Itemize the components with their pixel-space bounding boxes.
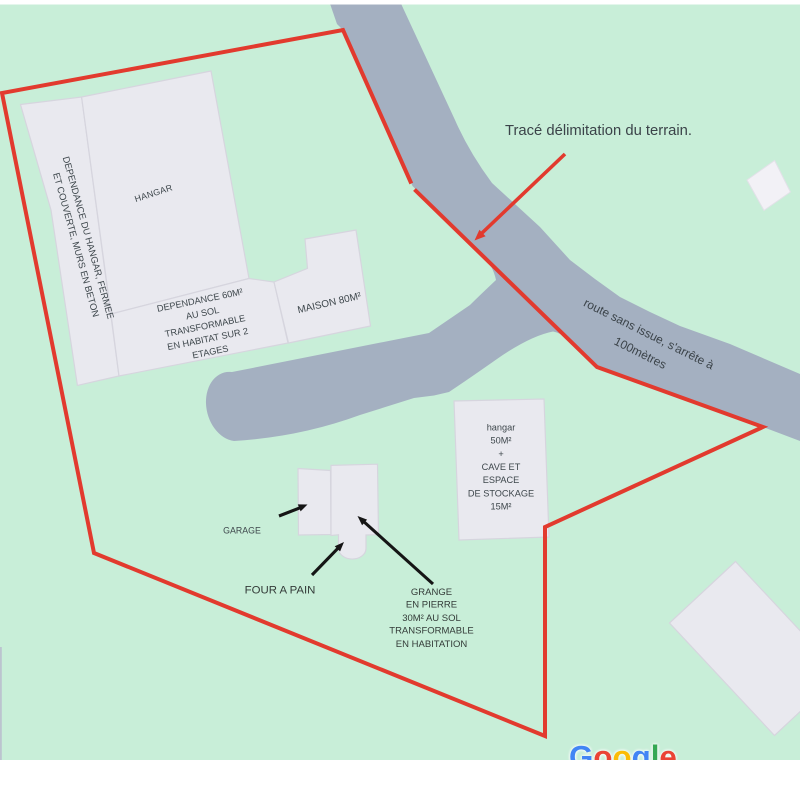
svg-text:Tracé délimitation du terrain.: Tracé délimitation du terrain. [505, 123, 692, 139]
svg-text:CAVE ET: CAVE ET [482, 462, 521, 472]
svg-text:FOUR A PAIN: FOUR A PAIN [245, 585, 316, 597]
svg-text:50M²: 50M² [491, 436, 512, 446]
svg-text:EN PIERRE: EN PIERRE [406, 600, 457, 611]
svg-text:EN HABITATION: EN HABITATION [396, 639, 468, 650]
svg-text:DE STOCKAGE: DE STOCKAGE [468, 488, 534, 498]
svg-text:GARAGE: GARAGE [223, 526, 261, 536]
svg-text:hangar: hangar [487, 422, 516, 432]
svg-text:TRANSFORMABLE: TRANSFORMABLE [389, 626, 473, 637]
svg-text:ESPACE: ESPACE [483, 475, 520, 485]
svg-text:30M² AU SOL: 30M² AU SOL [402, 613, 461, 624]
svg-text:15M²: 15M² [491, 502, 512, 512]
svg-text:+: + [498, 449, 503, 459]
svg-text:GRANGE: GRANGE [411, 587, 452, 598]
